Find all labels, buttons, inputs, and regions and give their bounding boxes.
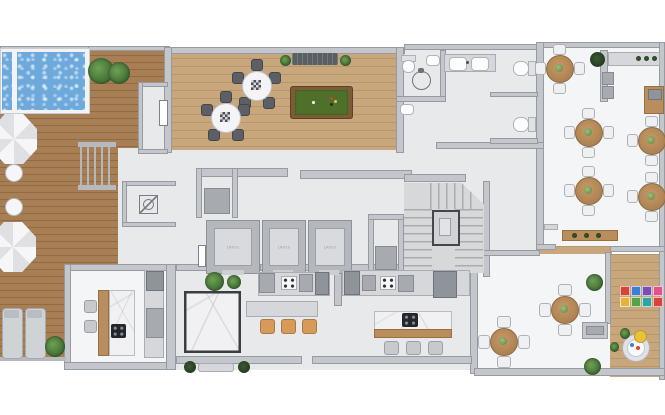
utility-box [204,188,230,214]
dining-cabinet-2 [602,86,614,99]
plant-party-1 [586,274,603,291]
dining-table-1 [536,45,582,91]
floor-plan: LRIOS LRIOS LRIOS [0,0,665,415]
plant-deck-bottom [45,336,65,357]
bbq-island-wood [98,290,109,356]
party-table-2 [480,318,526,364]
wall-stall-partition-2 [490,138,538,144]
buffet-item-3 [596,233,601,238]
party-niche-box [586,326,604,335]
cooktop-icon [402,313,418,327]
wall-closet-top [368,214,404,220]
bar-stool-orange-3 [302,319,317,334]
bar-stool-3 [428,341,443,355]
wall-shower-bottom [122,222,176,227]
plant-poolside-2 [108,62,130,84]
bar-island [246,301,318,317]
counter-item-1 [636,56,641,61]
bar-stool-2 [406,341,421,355]
counter-item-2 [644,56,649,61]
billiard-ball-black [330,103,333,106]
plant-bench-left [280,55,291,66]
lounger-pillow-2 [27,310,42,318]
closet-box [375,246,397,270]
plant-bar-2 [227,275,241,289]
bbq-appliance-1 [146,271,164,291]
deck-rail-slats [80,147,114,185]
wall-utility-right [232,168,238,218]
wall-bath-top [404,44,544,50]
elevator-label-2: LRIOS [278,245,290,249]
desk-top-item [648,89,662,100]
bar-appliance-1 [259,273,275,293]
wall-accwc-bottom [396,96,446,102]
pool-small [2,52,12,110]
kitchen-stove [380,276,396,290]
plant-bench-right [340,55,351,66]
billiard-cue-ball [312,101,315,104]
bar-stool-1 [384,341,399,355]
toy-ball-blue [630,343,634,347]
wall-deck-top [88,46,170,51]
wall-shower-top [122,181,176,186]
billiard-ball-yellow [334,100,337,103]
wall-bbq-right [166,264,176,370]
wall-storage-bottom [138,149,168,154]
bar-stool-orange-2 [281,319,296,334]
party-table-1 [541,286,587,332]
plant-entry-2 [238,361,250,373]
wall-bbq-bottom [64,362,176,370]
dining-table-4 [628,117,665,163]
wheelchair-icon [412,71,431,90]
plant-dining-top [590,52,605,67]
bbq-island-marble [109,290,135,356]
billiard-felt [295,90,348,115]
side-table-1 [5,164,23,182]
wall-closet-left [368,214,374,276]
stairs-icon [404,183,484,273]
elevator-icon-3: LRIOS [308,220,352,274]
bar-appliance-2 [299,274,313,292]
elevator-icon-1: LRIOS [206,220,260,274]
buffet-sideboard [562,230,618,241]
bar-stove [281,276,297,290]
toy-ball-red [636,346,640,350]
deck-rail-bottom [78,185,116,190]
toilet-icon-1 [513,61,529,76]
dining-table-3 [565,167,611,213]
wall-lobby-band-2 [300,170,412,179]
wall-shower-left [122,181,127,227]
kitchen-appliance-3 [398,275,414,292]
pool-main [17,52,85,110]
wall-bbq-left [64,264,71,370]
door-label-tag-2 [198,245,206,267]
wall-storage-left [138,82,143,154]
dining-cabinet-1 [602,72,614,85]
buffet-item-1 [572,233,577,238]
entry-bench [198,363,234,372]
wall-dining-bottom-b [610,246,665,252]
bar-appliance-3 [315,272,329,295]
lounger-pillow-1 [4,310,19,318]
side-table-2 [5,198,23,216]
shower-head [400,104,414,115]
bench [292,53,338,65]
wheelchair-seat [418,68,424,73]
elevator-label-3: LRIOS [324,245,336,249]
toilet-icon-2 [513,117,529,132]
bbq-stool-2 [84,320,97,333]
kitchen-appliance-1 [344,271,360,295]
plant-kids-terrace [620,328,630,339]
wall-lobby-band-1 [196,168,288,177]
island-bar [374,329,452,338]
wall-utility-left [196,168,202,218]
kitchen-fridge [433,271,457,298]
toilet-tank-2 [528,117,536,132]
wall-stall-partition-1 [490,92,538,97]
billiard-ball-red [330,97,333,100]
kitchen-appliance-2 [362,275,376,291]
plant-kids-terrace-2 [610,342,619,352]
wall-bottom-right [474,368,665,376]
toy-ball-yellow [634,330,647,343]
sink-icon-2 [471,57,489,71]
wall-closet-right [398,214,404,276]
plant-party-2 [584,358,601,375]
game-table-2 [201,93,249,141]
counter-item-3 [652,56,657,61]
dining-table-2 [565,109,611,155]
wall-kitchen-bottom [312,356,472,364]
plant-bar-1 [205,272,224,291]
sink-icon-1 [449,57,467,71]
marble-floor-inlay [184,291,241,353]
dining-shelf [544,224,558,230]
elevator-label-1: LRIOS [227,245,239,249]
bar-stool-orange-1 [260,319,275,334]
accessible-sink [426,55,440,66]
wall-party-right [605,252,611,324]
dining-table-5 [628,173,665,219]
vanity-dot [466,61,469,64]
accessible-toilet-bowl [402,60,415,73]
bbq-appliance-2 [146,308,164,338]
bbq-stool-1 [84,300,97,313]
floor-drain-icon [139,195,158,214]
play-mat-icon [620,286,665,308]
door-label-tag-1 [159,100,168,126]
wall-stairs-right [483,181,490,277]
plant-entry-1 [184,361,196,373]
bbq-cooktop-icon [111,324,126,338]
wall-stairs-top [404,174,466,182]
elevator-icon-2: LRIOS [262,220,306,274]
buffet-item-2 [584,233,589,238]
wall-game-top [164,47,405,54]
